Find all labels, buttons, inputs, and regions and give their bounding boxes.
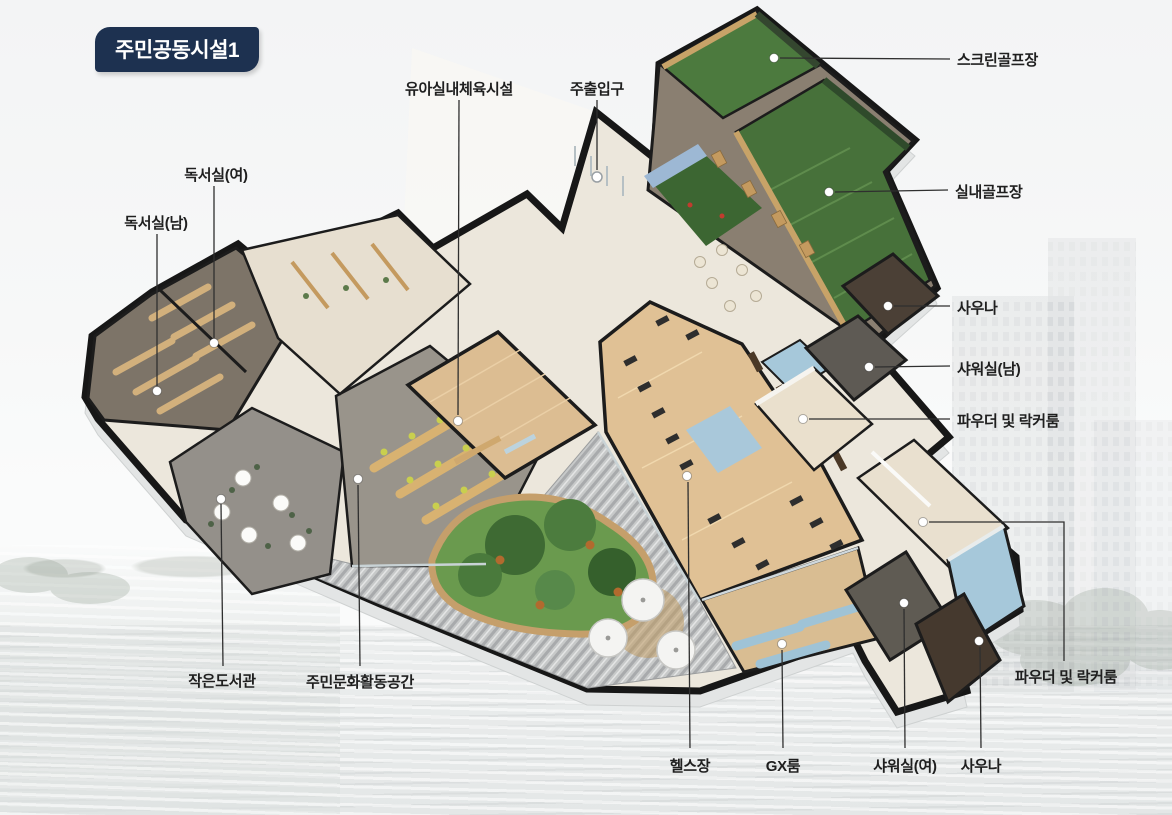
label-reading-room-men: 독서실(남) bbox=[124, 212, 187, 233]
label-powder-locker-upper: 파우더 및 락커룸 bbox=[957, 410, 1059, 431]
label-sauna-lower: 사우나 bbox=[961, 755, 1002, 776]
label-shower-room-men: 샤워실(남) bbox=[957, 358, 1020, 379]
title-badge: 주민공동시설1 bbox=[95, 27, 259, 72]
label-shower-room-women: 샤워실(여) bbox=[873, 755, 936, 776]
label-reading-room-women: 독서실(여) bbox=[184, 164, 247, 185]
label-infant-indoor-gym: 유아실내체육시설 bbox=[405, 78, 513, 99]
label-screen-golf: 스크린골프장 bbox=[957, 49, 1038, 70]
label-community-culture-space: 주민문화활동공간 bbox=[306, 671, 414, 692]
building bbox=[85, 10, 1024, 728]
entrance-marker-ring bbox=[592, 172, 602, 182]
floor-plan-page: 주민공동시설1 유아실내체육시설 주출입구 스크린골프장 실내골프장 사우나 샤… bbox=[0, 0, 1172, 815]
label-main-entrance: 주출입구 bbox=[570, 78, 624, 99]
floor-plan-rendering bbox=[0, 0, 1172, 815]
label-fitness-center: 헬스장 bbox=[670, 755, 711, 776]
label-indoor-golf: 실내골프장 bbox=[955, 181, 1023, 202]
label-sauna-upper: 사우나 bbox=[957, 297, 998, 318]
label-powder-locker-lower: 파우더 및 락커룸 bbox=[1015, 666, 1117, 687]
label-gx-room: GX룸 bbox=[766, 755, 801, 776]
label-small-library: 작은도서관 bbox=[188, 670, 256, 691]
